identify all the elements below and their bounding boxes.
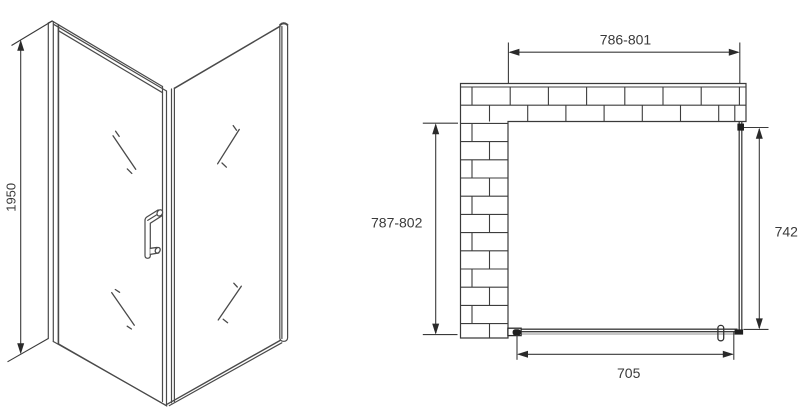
svg-text:1950: 1950	[4, 183, 19, 212]
svg-text:742: 742	[775, 224, 799, 240]
svg-text:786-801: 786-801	[600, 32, 652, 48]
svg-text:705: 705	[617, 365, 641, 381]
svg-text:787-802: 787-802	[371, 215, 423, 231]
